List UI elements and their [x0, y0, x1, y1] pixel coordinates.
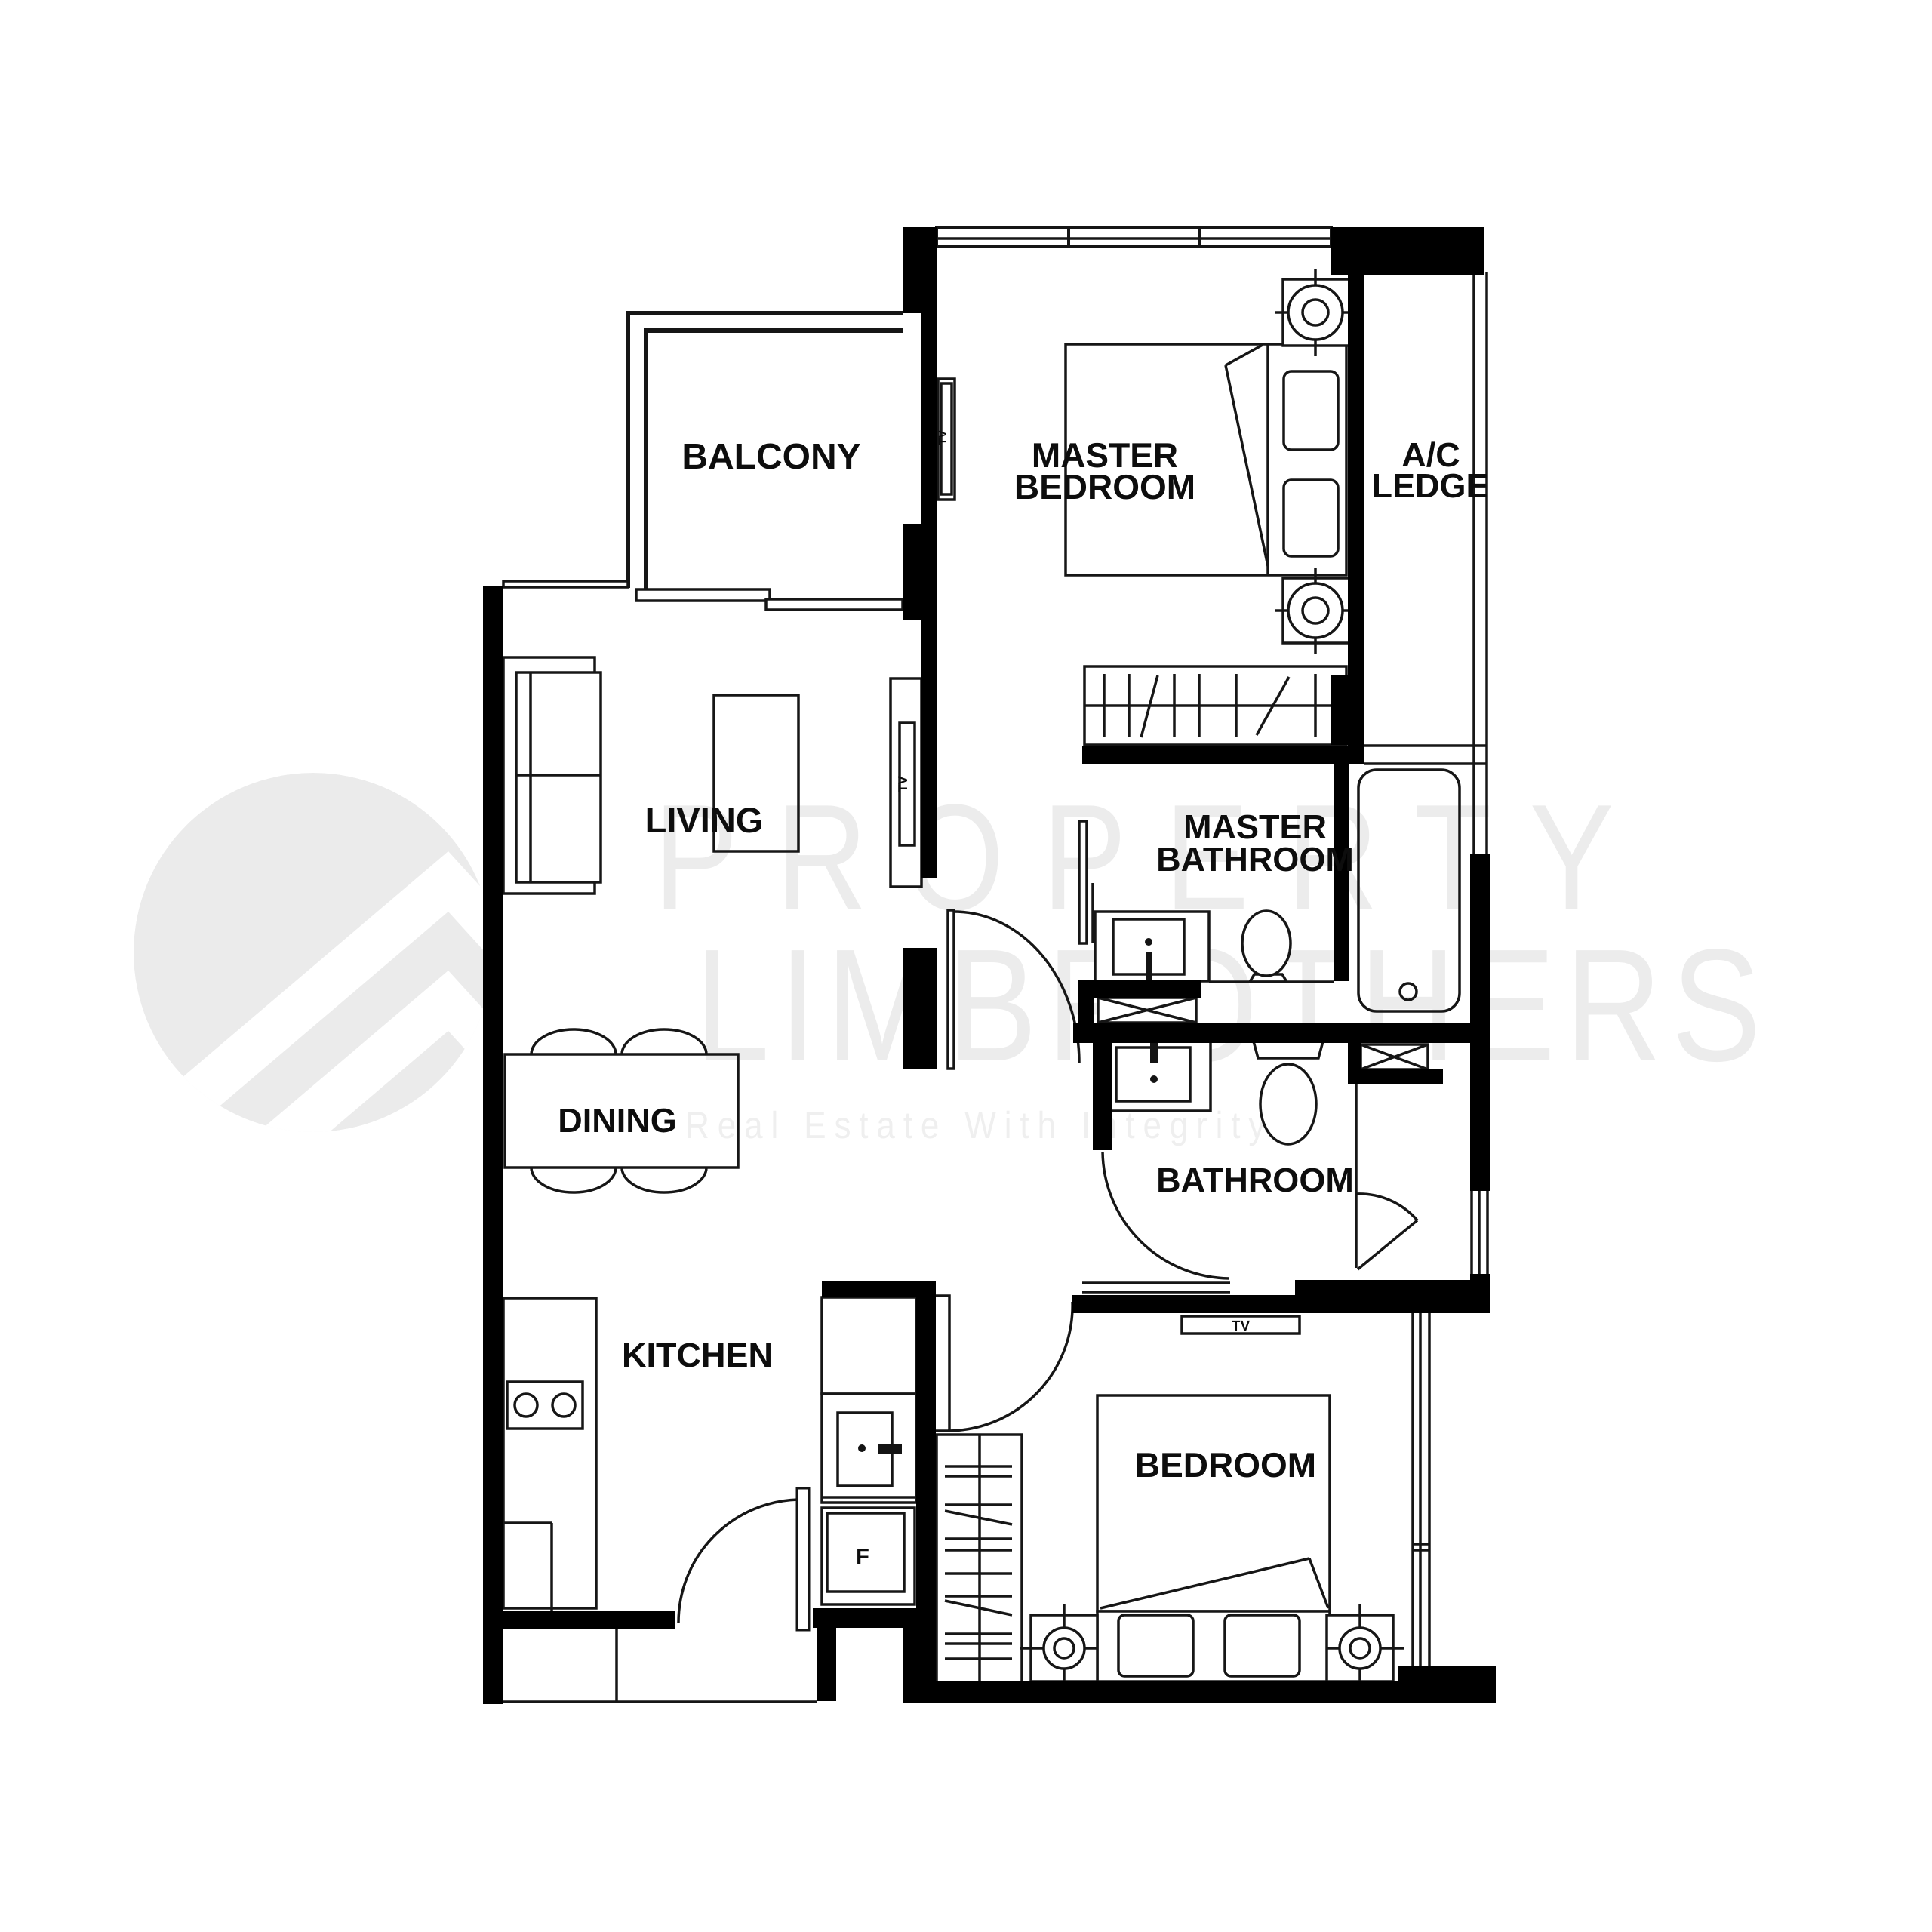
svg-text:TV: TV — [937, 430, 949, 445]
svg-text:BALCONY: BALCONY — [681, 437, 860, 477]
svg-text:TV: TV — [1232, 1318, 1251, 1334]
svg-text:BATHROOM: BATHROOM — [1156, 1161, 1354, 1199]
svg-text:KITCHEN: KITCHEN — [622, 1336, 773, 1374]
svg-text:BATHROOM: BATHROOM — [1156, 840, 1354, 878]
svg-text:LEDGE: LEDGE — [1371, 466, 1488, 505]
svg-text:BEDROOM: BEDROOM — [1135, 1445, 1316, 1484]
svg-text:DINING: DINING — [558, 1101, 677, 1140]
svg-text:F: F — [856, 1545, 869, 1569]
svg-text:LIMBROTHERS: LIMBROTHERS — [695, 915, 1761, 1094]
svg-text:BEDROOM: BEDROOM — [1014, 467, 1195, 506]
svg-text:LIVING: LIVING — [645, 800, 764, 840]
svg-text:TV: TV — [896, 775, 910, 792]
